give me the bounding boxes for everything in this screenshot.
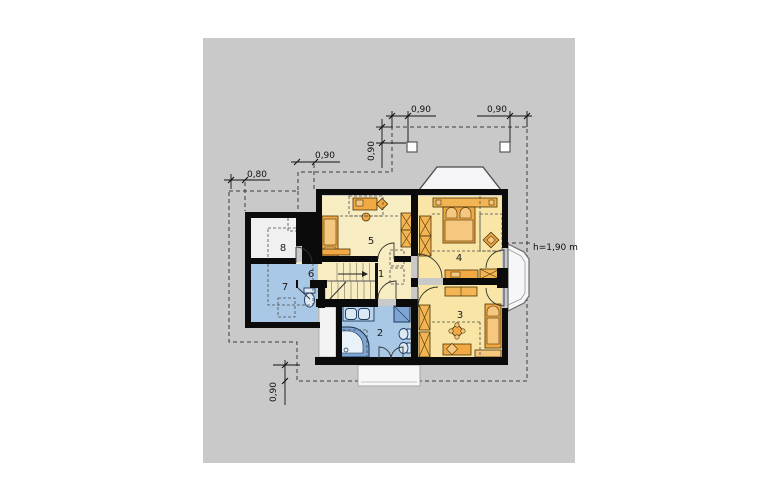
toilet-bowl [399,329,408,340]
desk-symbol [445,270,478,279]
exterior-notch [319,307,336,357]
bed-blanket [445,220,473,241]
dim-overhang-left: 0,80 [247,170,267,180]
bed-pillow [446,208,457,219]
bidet-bowl [399,343,408,354]
dim-eave-step-left: 0,90 [315,151,335,161]
dim-skylight-right: 0,90 [487,105,507,115]
dim-overhang-bottom: 0,90 [269,382,279,402]
bench-symbol [322,249,350,255]
bench-symbol [475,350,501,357]
bed-pillow [460,208,471,219]
room-8-area [251,218,296,258]
room-label-4: 4 [456,253,462,264]
knee-wall-height-label: h=1,90 m [533,243,578,253]
skylight-right-icon [500,142,510,152]
desk-item [451,272,460,277]
bay-window [508,244,529,311]
balcony [358,365,420,386]
bed-blanket [487,318,499,344]
room-label-5: 5 [368,236,374,247]
room-label-6: 6 [308,269,314,280]
room-label-3: 3 [457,310,463,321]
headboard-shelf [433,198,497,207]
room-label-7: 7 [282,282,288,293]
floor-plan-drawing: 0,80 0,90 0,90 0,90 0,90 0,90 h=1,90 m 1… [0,0,780,503]
dim-skylight-left: 0,90 [411,105,431,115]
washbasin-icon [359,309,370,320]
desk-item [356,200,363,206]
shelf-item [436,200,441,205]
bed-pillow [487,306,499,316]
room-label-2: 2 [377,328,383,339]
room-label-1: 1 [378,269,384,280]
room-label-8: 8 [280,243,286,254]
washbasin-icon [346,309,357,320]
skylight-left-icon [407,142,417,152]
bed-blanket [324,219,336,245]
stool-symbol [362,213,370,221]
dim-roof-edge-vertical: 0,90 [367,141,377,161]
floor-plan-page: 0,80 0,90 0,90 0,90 0,90 0,90 h=1,90 m 1… [0,0,780,503]
shelf-item [489,200,494,205]
